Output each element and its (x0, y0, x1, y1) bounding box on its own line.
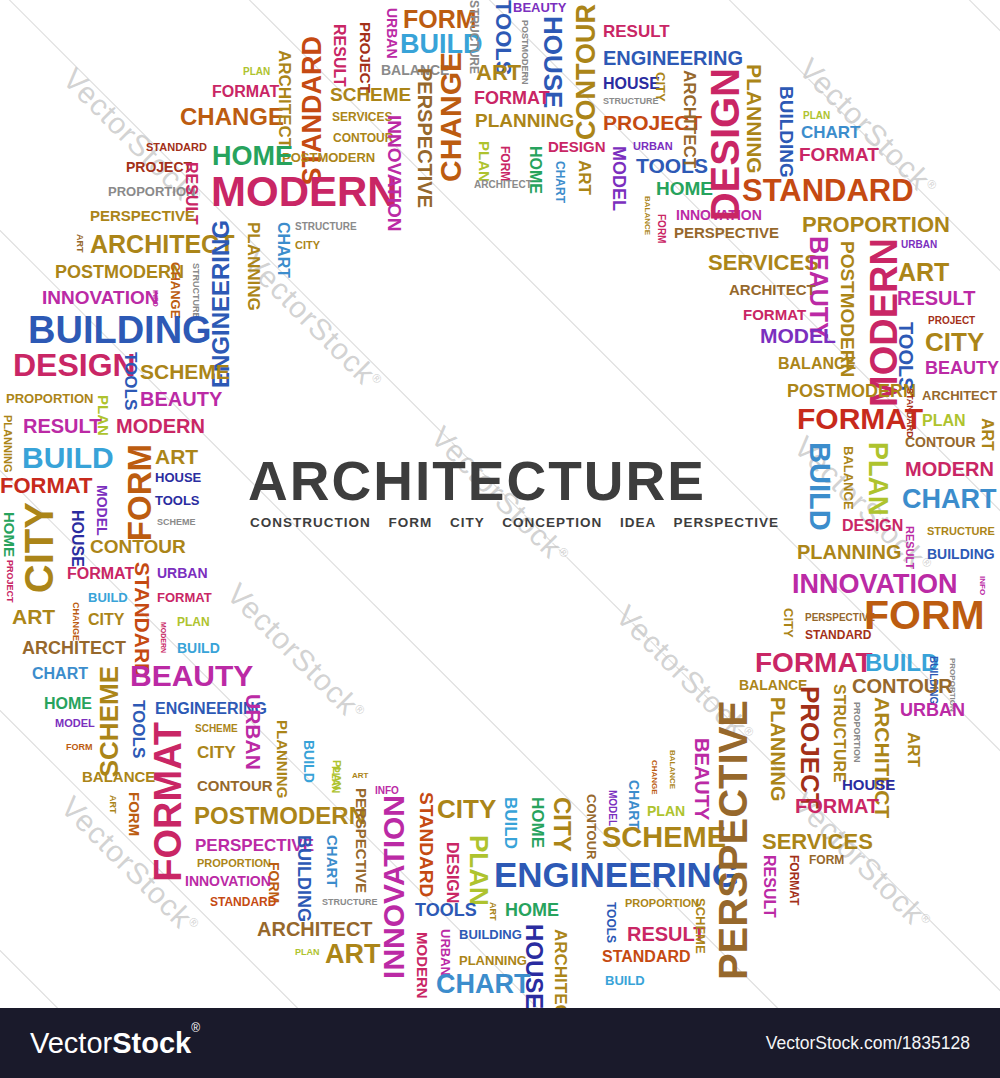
cloud-word: PLANNING (459, 955, 527, 967)
cloud-word: SERVICES (708, 253, 819, 274)
cloud-word: MODERN (415, 932, 429, 999)
cloud-word: CITY (925, 330, 984, 355)
cloud-word: STRUCTURE (295, 222, 357, 232)
cloud-word: CITY (550, 797, 573, 852)
cloud-word: PLANNING (744, 64, 764, 174)
cloud-word: PROPORTION (802, 215, 950, 236)
cloud-word: ARCHITECT (276, 50, 292, 148)
cloud-word: PROJECT (928, 316, 975, 326)
cloud-word: ENGINEERING (603, 49, 743, 68)
cloud-word: RESULT (23, 417, 102, 436)
cloud-word: HOME (529, 797, 545, 848)
cloud-word: CONTOUR (197, 779, 273, 793)
cloud-word: BUILDING (28, 312, 212, 348)
cloud-word: POSTMODERN (520, 20, 529, 85)
cloud-word: RESULT (603, 24, 670, 40)
cloud-word: MODEL (760, 326, 836, 346)
cloud-word: RESULT (332, 24, 347, 87)
cloud-word: INNOVATION (380, 795, 409, 979)
cloud-word: FORM (124, 444, 155, 541)
cloud-word: ART (488, 902, 497, 921)
cloud-word: CHANGE (437, 52, 466, 182)
cloud-word: POSTMODERN (55, 264, 184, 281)
cloud-word: SCHEME (195, 724, 238, 734)
cloud-word: FORM (499, 146, 510, 181)
registered-mark: ® (191, 1021, 200, 1035)
cloud-word: PROPORTION (6, 393, 93, 405)
cloud-word: INFO (151, 290, 158, 307)
cloud-word: BUILD (88, 592, 128, 604)
cloud-word: PLANNING (475, 112, 574, 130)
cloud-word: ART (325, 942, 381, 968)
word-cloud-image: VectorStock®VectorStock®VectorStock®Vect… (0, 0, 1000, 1078)
cloud-word: ART (898, 261, 949, 285)
cloud-word: CHANGE (180, 106, 284, 129)
cloud-word: BUILD (302, 740, 315, 783)
cloud-word: URBAN (900, 702, 965, 719)
cloud-word: BUILD (177, 642, 220, 655)
cloud-word: PROJECT (358, 22, 372, 93)
cloud-word: PLAN (466, 835, 491, 906)
cloud-word: BALANCE (82, 770, 155, 784)
cloud-word: FORMAT (755, 650, 873, 677)
cloud-word: CHANGE (650, 760, 658, 795)
cloud-word: PERSPECTIVE (415, 68, 434, 208)
cloud-word: DESIGN (13, 350, 136, 380)
cloud-word: URBAN (243, 694, 263, 770)
cloud-word: BEAUTY (692, 738, 711, 820)
cloud-word: TOOLS (130, 700, 146, 758)
cloud-word: HOUSE (70, 510, 85, 567)
cloud-word: DESIGN (548, 140, 606, 154)
cloud-word: BEAUTY (140, 390, 222, 409)
cloud-word: INNOVATION (185, 875, 271, 888)
cloud-word: STRUCTURE (927, 526, 995, 536)
cloud-word: BUILD (805, 442, 833, 531)
cloud-word: CITY (437, 797, 496, 822)
cloud-word: PROPORTION (197, 858, 271, 868)
footer-bar: VectorStock® VectorStock.com/1835128 (0, 1008, 1000, 1078)
cloud-word: PLANNING (3, 415, 13, 472)
cloud-word: CITY (295, 240, 320, 250)
cloud-word: DESIGN (842, 518, 903, 533)
cloud-word: ARCHITECT (474, 180, 532, 190)
cloud-word: SCHEME (97, 666, 122, 777)
cloud-word: FORMAT (150, 722, 186, 882)
page-title: ARCHITECTURE (248, 454, 706, 509)
cloud-word: MODEL (610, 146, 627, 211)
cloud-word: CITY (197, 745, 236, 761)
cloud-word: CHART (276, 222, 291, 278)
cloud-word: MODEL (55, 718, 95, 728)
cloud-word: FORM (864, 596, 985, 635)
cloud-word: DESIGN (445, 842, 460, 903)
cloud-word: URBAN (157, 567, 208, 580)
cloud-word: ARCHITECT (257, 920, 373, 939)
cloud-word: TOOLS (155, 495, 200, 507)
cloud-word: RESULT (905, 526, 915, 569)
cloud-word: FORM (66, 743, 93, 752)
cloud-word: TOOLS (415, 902, 477, 919)
cloud-word: ARCHITECT (729, 283, 816, 297)
cloud-word: PLAN (332, 760, 342, 790)
cloud-word: RESULT (897, 289, 976, 308)
cloud-word: BALANCE (643, 196, 651, 235)
cloud-word: ARCHITECT (922, 390, 997, 402)
cloud-word: BALANCE (778, 356, 856, 371)
cloud-word: ENGINEERING (494, 858, 739, 891)
cloud-word: BALANCE (668, 750, 676, 789)
cloud-word: PERSPECTIVE (354, 788, 368, 893)
cloud-word: BUILDING (295, 835, 312, 922)
cloud-word: SCHEME (140, 362, 230, 382)
cloud-word: URBAN (901, 240, 937, 250)
cloud-word: PROJECT (797, 686, 822, 809)
cloud-word: SCHEME (694, 898, 706, 954)
cloud-word: FORMAT (474, 90, 550, 107)
cloud-word: CONTOUR (90, 538, 186, 556)
cloud-word: PLAN (864, 442, 890, 516)
cloud-word: BUILDING (777, 86, 795, 178)
cloud-word: POSTMODERN (787, 383, 916, 400)
cloud-word: HOME (2, 512, 16, 557)
cloud-word: STANDARD (602, 949, 691, 964)
cloud-word: BEAUTY (513, 2, 566, 14)
cloud-word: CONTOUR (852, 677, 953, 696)
cloud-word: PERSPECTIVE (714, 700, 752, 980)
cloud-word: BUILD (22, 444, 114, 473)
cloud-word: ART (12, 607, 55, 627)
cloud-word: MODERN (905, 460, 994, 479)
cloud-word: BEAUTY (925, 360, 999, 377)
cloud-word: FORMAT (157, 592, 212, 604)
cloud-word: HOUSE (603, 76, 660, 91)
cloud-word: MODERN (159, 622, 166, 653)
cloud-word: URBAN (633, 141, 673, 151)
cloud-word: FORMAT (788, 855, 799, 905)
cloud-word: RESULT (762, 855, 777, 918)
cloud-word: SCHEME (602, 824, 726, 852)
cloud-word: FORMAT (797, 405, 923, 434)
cloud-word: STRUCTURE (322, 898, 378, 907)
cloud-word: SCHEME (157, 518, 196, 527)
cloud-word: PLAN (922, 413, 966, 428)
cloud-word: URBAN (385, 8, 398, 59)
cloud-word: POSTMODERN (282, 152, 375, 164)
cloud-word: ART (75, 234, 84, 253)
cloud-word: PLAN (803, 111, 830, 121)
vectorstock-logo: VectorStock® (30, 1026, 200, 1061)
cloud-word: HOUSE (842, 778, 895, 792)
cloud-word: TOOLS (605, 902, 616, 943)
cloud-word: CITY (20, 502, 58, 593)
cloud-word: STRUCTURE (832, 684, 847, 783)
cloud-word: ARCHITECT (22, 640, 126, 657)
cloud-word: STANDARD (742, 176, 914, 205)
cloud-word: ART (352, 772, 368, 780)
cloud-word: ART (905, 732, 921, 767)
cloud-word: CHART (436, 972, 531, 998)
cloud-word: STRUCTURE (603, 97, 659, 106)
cloud-word: CHART (902, 487, 997, 513)
cloud-word: BEAUTY (130, 662, 253, 691)
cloud-word: HOME (505, 902, 559, 919)
cloud-word: FORMAT (799, 146, 879, 164)
cloud-word: STANDARD (417, 792, 435, 897)
cloud-word: PERSPECTIVE (90, 209, 195, 223)
cloud-word: CHART (554, 161, 565, 203)
cloud-word: CHART (801, 125, 861, 141)
image-credit-url: VectorStock.com/1835128 (766, 1033, 970, 1054)
cloud-word: CONTOUR (905, 436, 976, 449)
cloud-word: POSTMODERN (194, 805, 366, 828)
cloud-word: SERVICES (762, 832, 873, 853)
cloud-word: PLAN (477, 141, 491, 182)
cloud-word: FORM (656, 214, 666, 243)
cloud-word: STANDARD (146, 142, 207, 152)
cloud-word: CHART (325, 835, 339, 888)
cloud-word: CITY (782, 608, 794, 638)
cloud-word: BALANCE (842, 446, 854, 510)
cloud-word: BUILD (605, 975, 645, 987)
cloud-word: PLAN (295, 948, 320, 957)
cloud-word: MODERN (211, 172, 398, 212)
cloud-word: PLAN (177, 617, 210, 628)
cloud-word: BUILD (502, 797, 518, 849)
cloud-word: INNOVATION (385, 115, 403, 231)
cloud-word: FORMAT (743, 308, 806, 322)
cloud-word: HOUSE (155, 472, 201, 484)
cloud-word: ART (155, 447, 198, 467)
cloud-word: PLAN (647, 805, 685, 818)
cloud-word: CHART (32, 666, 88, 681)
cloud-word: MODERN (116, 417, 205, 436)
cloud-word: CITY (88, 612, 124, 627)
cloud-word: PROJECT (5, 560, 14, 603)
cloud-word: FORMAT (0, 476, 92, 497)
cloud-word: PLAN (243, 67, 270, 77)
cloud-word: BUILDING (927, 548, 995, 561)
cloud-word: ART (980, 418, 995, 451)
cloud-word: FORMAT (795, 797, 879, 816)
cloud-word: PLANNING (797, 543, 901, 562)
cloud-word: BUILDING (459, 929, 522, 941)
cloud-word: CONTOUR (574, 4, 600, 140)
cloud-word: PLANNING (245, 222, 261, 311)
cloud-word: CHANGE (71, 602, 80, 641)
cloud-word: TOOLS (122, 352, 138, 410)
cloud-word: CONTOUR (585, 794, 597, 859)
cloud-word: FORM (127, 792, 141, 836)
cloud-word: PROPORTION (625, 898, 699, 908)
cloud-word: INNOVATION (42, 289, 158, 307)
cloud-word: FORMAT (212, 84, 279, 99)
subtitle-keywords: CONSTRUCTION FORM CITY CONCEPTION IDEA P… (250, 515, 779, 530)
cloud-word: ARCHITECT (681, 70, 697, 168)
cloud-word: ART (576, 160, 592, 195)
cloud-word: STANDARD (805, 630, 871, 641)
cloud-word: PLANNING (768, 697, 787, 801)
cloud-word: HOME (212, 144, 293, 170)
cloud-word: STANDARD (210, 897, 276, 908)
brand-bold: Stock (112, 1027, 191, 1059)
cloud-word: ART (108, 795, 117, 814)
cloud-word: PLANNING (275, 720, 289, 798)
cloud-word: PERSPECTIVE (674, 226, 779, 240)
cloud-word: ART (476, 63, 521, 84)
cloud-word: MODEL (95, 485, 108, 536)
cloud-word: PROPORTION (852, 702, 861, 763)
cloud-word: DESIGN (706, 68, 744, 221)
brand-light: Vector (30, 1027, 112, 1059)
cloud-word: FORM (809, 855, 844, 866)
cloud-word: FORMAT (67, 566, 134, 581)
cloud-word: HOME (44, 696, 92, 711)
